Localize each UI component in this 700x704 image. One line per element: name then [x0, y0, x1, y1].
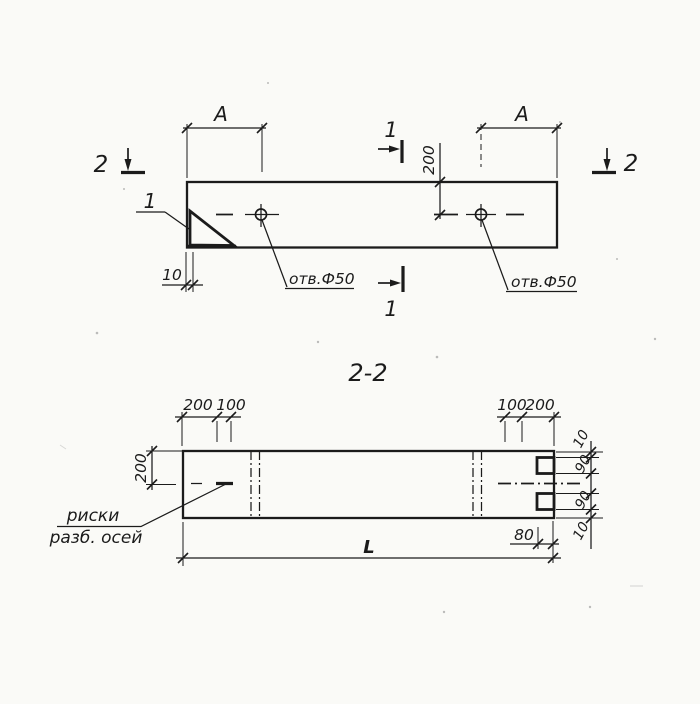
- drawing-sheet: A A 200 2 2: [0, 0, 700, 700]
- cut-1-bottom-arrowhead: [390, 280, 401, 287]
- plan-view: A A 200 2 2: [94, 102, 639, 321]
- section-outline: [183, 451, 554, 518]
- dim-tr-100-label: 100: [497, 396, 527, 414]
- dims-top-left: 200 100: [175, 396, 246, 446]
- dim-200-plan-label: 200: [420, 145, 438, 175]
- dim-200-section-left: 200: [132, 446, 182, 490]
- dim-a-left-label: A: [212, 102, 228, 126]
- dim-a-right-label: A: [513, 102, 529, 126]
- plan-outline: [187, 182, 557, 248]
- speck: [589, 606, 591, 608]
- scan-noise: [60, 82, 656, 613]
- cut-2-right-label: 2: [624, 151, 639, 177]
- dim-a-left: A: [182, 102, 267, 178]
- detail-ref-label: 1: [144, 189, 157, 213]
- speck: [559, 121, 561, 123]
- dim-80-label: 80: [514, 526, 534, 544]
- cut-mark-2-left: 2: [94, 148, 145, 178]
- speck: [654, 338, 656, 340]
- dim-length: L: [176, 522, 561, 566]
- dim-tl-100-label: 100: [216, 396, 246, 414]
- speck: [96, 332, 99, 335]
- cut-mark-1-top: 1: [378, 118, 402, 163]
- dim-10-label: 10: [162, 266, 182, 284]
- dim-80: 80: [510, 521, 559, 563]
- axis-note-line1: риски: [66, 506, 120, 526]
- cut-2-left-arrowhead: [125, 159, 132, 171]
- dim-200-left-label: 200: [132, 453, 150, 483]
- speck: [436, 356, 439, 359]
- dim-tl-200-label: 200: [183, 396, 213, 414]
- notch-bottom: [537, 494, 554, 510]
- dim-L-label: L: [363, 537, 374, 558]
- section-view: 2-2 200: [49, 359, 603, 566]
- cut-1-top-arrowhead: [389, 146, 400, 153]
- dim-right-10-top: 10: [570, 427, 593, 450]
- dim-a-right: A: [476, 102, 562, 178]
- cut-mark-1-bottom: 1: [378, 266, 403, 321]
- cut-1-bottom-label: 1: [384, 297, 397, 321]
- speck: [317, 341, 319, 343]
- speck-dash: [60, 445, 66, 449]
- axis-note-line2: разб. осей: [49, 528, 143, 548]
- speck: [123, 188, 125, 190]
- speck: [616, 258, 618, 260]
- section-title: 2-2: [348, 359, 387, 387]
- hole-right-label: отв.Ф50: [511, 273, 577, 291]
- detail-ref-leader: [165, 212, 189, 229]
- technical-drawing-svg: A A 200 2 2: [0, 0, 700, 700]
- speck: [267, 82, 269, 84]
- dim-tr-200-label: 200: [525, 396, 555, 414]
- cut-mark-2-right: 2: [592, 148, 638, 177]
- cut-2-left-label: 2: [94, 152, 109, 178]
- dim-10-plan: 10: [162, 252, 203, 292]
- cut-2-right-arrowhead: [604, 159, 611, 171]
- dims-right-chain: 10 90 90 10: [556, 427, 603, 549]
- dims-top-right: 100 200: [497, 396, 561, 446]
- dim-right-10-bottom: 10: [570, 519, 593, 542]
- cut-1-top-label: 1: [384, 118, 397, 142]
- detail-callout-1: 1: [136, 189, 189, 229]
- speck: [443, 611, 445, 613]
- notch-top: [537, 458, 554, 474]
- hole-left-label: отв.Ф50: [289, 270, 355, 288]
